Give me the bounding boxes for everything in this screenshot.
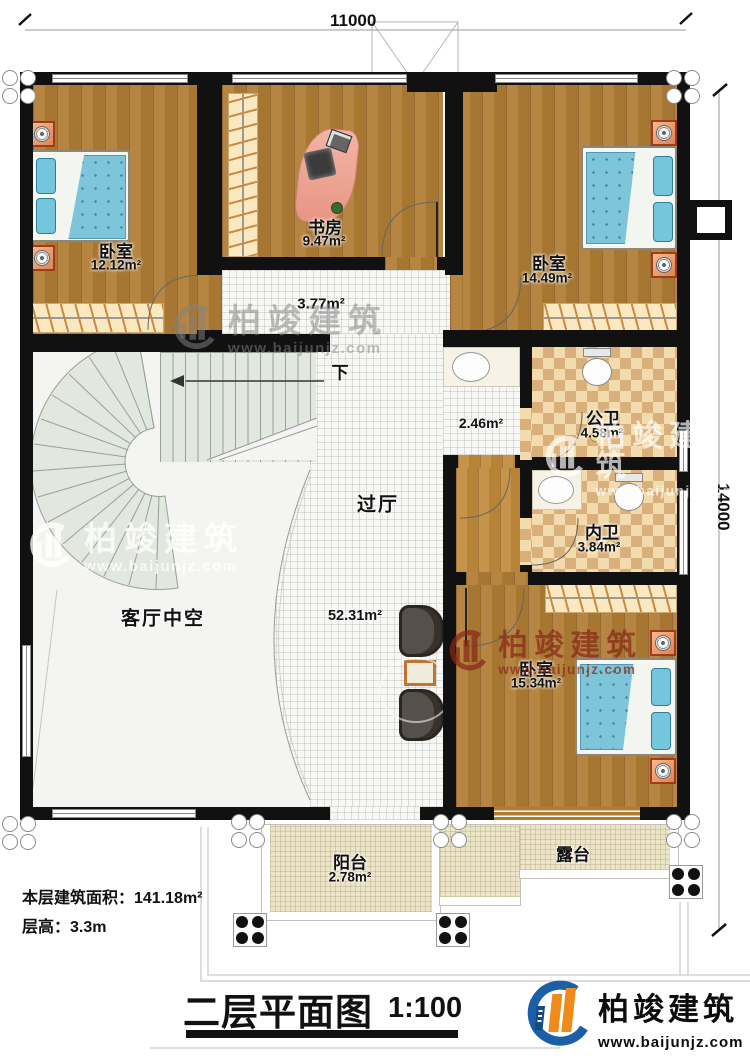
column-icon (2, 834, 18, 850)
pillow (653, 202, 673, 242)
room-area-bedroom-tr: 14.49m² (522, 271, 572, 286)
floor-height-note: 层高：3.3m (22, 913, 106, 937)
pillow (653, 156, 673, 196)
column-pad (669, 865, 703, 899)
stairs-down-label: 下 (332, 359, 349, 384)
room-area-private-bath: 3.84m² (578, 540, 621, 555)
column-icon (249, 832, 265, 848)
column-icon (20, 816, 36, 832)
column-icon (2, 70, 18, 86)
column-icon (684, 88, 700, 104)
pile-dot-icon (252, 932, 264, 944)
toilet-bowl (582, 358, 612, 386)
room-label-living-void: 客厅中空 (121, 604, 205, 631)
wall-segment (443, 455, 458, 468)
column-icon (2, 88, 18, 104)
window (22, 645, 31, 757)
hallway-area: 3.77m² (297, 296, 345, 313)
wall-segment (520, 347, 532, 408)
column-icon (231, 814, 247, 830)
wall-segment (222, 257, 385, 270)
column-icon (666, 832, 682, 848)
column-icon (666, 70, 682, 86)
room-area-public-bath: 4.58m² (581, 426, 624, 441)
column-cluster (666, 814, 702, 850)
wardrobe-br (545, 583, 677, 613)
wall-segment (443, 468, 456, 807)
dimension-top: 11000 (330, 11, 376, 31)
room-area-study: 9.47m² (303, 234, 346, 249)
bed-br (575, 658, 677, 756)
toilet-bowl (614, 483, 644, 511)
lamp-icon (655, 763, 671, 779)
bed-tl (30, 150, 130, 242)
column-icon (666, 88, 682, 104)
title-underline (186, 1030, 458, 1038)
toilet-public (579, 347, 615, 387)
column-icon (2, 816, 18, 832)
pile-dot-icon (236, 932, 248, 944)
floor-area-note: 本层建筑面积：141.18m² (22, 884, 203, 908)
sink-public (452, 352, 490, 382)
column-icon (684, 70, 700, 86)
window (679, 430, 688, 472)
toilet-private (611, 472, 647, 512)
brand-name: 柏竣建筑 (598, 984, 743, 1029)
lamp-icon (34, 126, 50, 142)
corridor-area: 2.46m² (459, 415, 503, 431)
sliding-door (494, 807, 640, 820)
door-opening (466, 572, 528, 585)
brand-logo-icon (520, 978, 594, 1052)
wardrobe-tl (30, 303, 164, 333)
wardrobe-tr (543, 303, 677, 333)
wall-segment (445, 85, 463, 275)
nightstand (651, 252, 677, 278)
bay-box (690, 200, 732, 240)
room-area-hall: 52.31m² (328, 608, 382, 624)
nightstand (650, 758, 676, 784)
pillow (651, 668, 671, 706)
pile-dot-icon (672, 884, 684, 896)
plant-icon (331, 202, 343, 214)
window (52, 809, 196, 818)
armchair (399, 605, 444, 657)
column-cluster (666, 70, 702, 106)
door-opening (520, 408, 532, 460)
column-pad (436, 913, 470, 947)
column-cluster (2, 816, 38, 852)
pile-dot-icon (252, 916, 264, 928)
door-opening (197, 275, 222, 330)
pile-dot-icon (439, 916, 451, 928)
column-icon (20, 70, 36, 86)
bedroom-br-entry-floor (456, 468, 530, 572)
computer-monitor-icon (303, 147, 336, 180)
lamp-icon (34, 250, 50, 266)
brand-website: www.baijunjz.com (598, 1034, 743, 1051)
lamp-icon (656, 257, 672, 273)
armchair (399, 689, 444, 741)
pillow (651, 712, 671, 750)
window (52, 74, 188, 83)
wall-segment (197, 85, 222, 275)
pile-dot-icon (439, 932, 451, 944)
column-icon (451, 814, 467, 830)
column-icon (684, 814, 700, 830)
nightstand (651, 120, 677, 146)
door-opening (385, 257, 437, 270)
toilet-tank (583, 348, 611, 357)
dimension-right: 14000 (713, 472, 733, 542)
lamp-icon (656, 125, 672, 141)
column-cluster (231, 814, 267, 850)
pile-dot-icon (455, 932, 467, 944)
room-label-terrace: 露台 (556, 841, 590, 866)
column-icon (433, 814, 449, 830)
column-icon (249, 814, 265, 830)
wall-segment (443, 330, 690, 347)
drawing-scale: 1:100 (388, 992, 462, 1025)
column-cluster (433, 814, 469, 850)
pile-dot-icon (672, 868, 684, 880)
pillow (36, 158, 56, 194)
door-opening (520, 518, 532, 565)
column-icon (433, 832, 449, 848)
room-area-bedroom-tl: 12.12m² (91, 258, 141, 273)
window (679, 490, 688, 575)
window (495, 74, 638, 83)
room-label-hall: 过厅 (357, 490, 399, 517)
column-icon (20, 834, 36, 850)
pile-dot-icon (455, 916, 467, 928)
pile-dot-icon (236, 916, 248, 928)
bed-tr (581, 146, 677, 250)
study-closet (228, 93, 258, 257)
brand-text-block: 柏竣建筑 www.baijunjz.com (598, 984, 743, 1051)
stairs-straight-run (160, 352, 316, 462)
column-cluster (2, 70, 38, 106)
wall-segment (456, 572, 466, 585)
toilet-tank (615, 473, 643, 482)
side-table (404, 660, 436, 686)
column-icon (666, 814, 682, 830)
wall-segment (20, 334, 330, 352)
drawing-title: 二层平面图 (183, 982, 373, 1036)
column-icon (684, 832, 700, 848)
column-icon (231, 832, 247, 848)
nightstand (650, 630, 676, 656)
column-pad (233, 913, 267, 947)
column-icon (451, 832, 467, 848)
window (232, 74, 407, 83)
door-opening (330, 807, 420, 820)
pillow (36, 198, 56, 234)
lamp-icon (655, 635, 671, 651)
door-opening (458, 455, 515, 468)
door-opening (450, 275, 463, 330)
wall-segment (528, 572, 690, 585)
floor-plan-canvas: 卧室 12.12m² 书房 9.47m² 卧室 14.49m² 3.77m² 下… (0, 0, 750, 1056)
room-area-bedroom-br: 15.34m² (511, 676, 561, 691)
wall-segment (527, 457, 690, 470)
pile-dot-icon (688, 884, 700, 896)
column-icon (20, 88, 36, 104)
terrace-slab (520, 825, 678, 878)
sink-private (538, 476, 574, 504)
pile-dot-icon (688, 868, 700, 880)
wall-segment (437, 257, 463, 270)
room-area-balcony: 2.78m² (329, 870, 372, 885)
